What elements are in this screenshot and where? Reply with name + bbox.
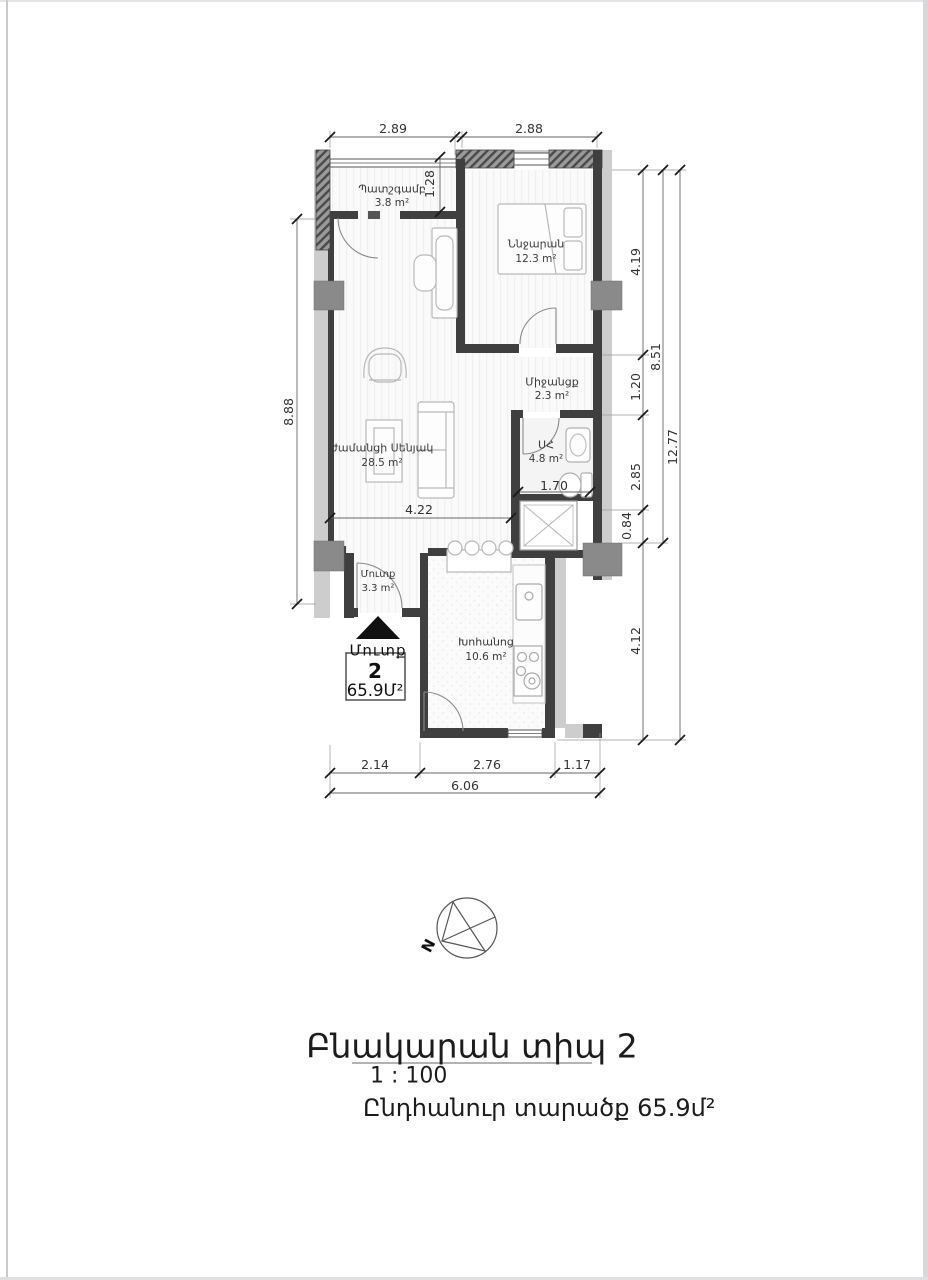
dim-right-1: 4.19 bbox=[630, 248, 643, 276]
dim-top-2: 2.88 bbox=[515, 123, 543, 136]
room-area-living: 28.5 m² bbox=[361, 458, 402, 469]
entrance-label: Մուտք bbox=[349, 644, 406, 659]
room-area-hallway: 2.3 m² bbox=[535, 391, 569, 402]
room-label-hallway: Միջանցք bbox=[525, 377, 579, 388]
shaft bbox=[520, 501, 577, 550]
room-label-kitchen: Խոհանոց bbox=[458, 637, 514, 648]
dim-right-3: 2.85 bbox=[630, 463, 643, 491]
sink bbox=[516, 584, 542, 620]
compass-icon bbox=[437, 898, 497, 958]
room-label-bedroom: Ննջարան bbox=[508, 239, 565, 250]
unit-number: 2 bbox=[368, 661, 382, 681]
dim-living-width: 4.22 bbox=[405, 504, 433, 517]
dim-bottom-total: 6.06 bbox=[451, 780, 479, 793]
desk-chair bbox=[414, 255, 436, 291]
drawing-scale: 1 : 100 bbox=[370, 1064, 447, 1089]
dim-right-2: 1.20 bbox=[630, 373, 643, 401]
dim-top-1: 2.89 bbox=[379, 123, 407, 136]
room-label-balcony: Պատշգամբ bbox=[358, 184, 426, 195]
dim-bottom-1: 2.14 bbox=[361, 759, 389, 772]
room-area-bathroom: 4.8 m² bbox=[529, 454, 563, 465]
total-area-text: Ընդհանուր տարածք 65.9մ² bbox=[363, 1094, 715, 1122]
dim-bottom-2: 2.76 bbox=[473, 759, 501, 772]
room-area-balcony: 3.8 m² bbox=[375, 198, 409, 209]
entrance-arrow-icon bbox=[356, 616, 400, 639]
floor-plan-page: 2.89 2.88 1.28 8.88 4.19 1.20 2.85 0.84 … bbox=[0, 0, 928, 1280]
dim-right-7: 4.12 bbox=[630, 627, 643, 655]
dim-bottom-3: 1.17 bbox=[563, 759, 591, 772]
room-label-entry: Մուտք bbox=[361, 570, 396, 580]
unit-area: 65.9Մ² bbox=[347, 683, 403, 700]
room-label-bathroom: ՍՀ bbox=[538, 440, 554, 451]
room-label-living: ժամանցի Սենյակ bbox=[331, 443, 434, 454]
dim-bath-width: 1.70 bbox=[540, 480, 568, 493]
dim-right-5: 8.51 bbox=[650, 343, 663, 371]
room-area-bedroom: 12.3 m² bbox=[515, 254, 556, 265]
room-area-entry: 3.3 m² bbox=[362, 584, 395, 594]
dim-right-4: 0.84 bbox=[621, 512, 634, 540]
room-area-kitchen: 10.6 m² bbox=[465, 652, 506, 663]
drawing-title: Բնակարան տիպ 2 bbox=[306, 1030, 637, 1063]
dim-left: 8.88 bbox=[283, 398, 296, 426]
dim-right-6: 12.77 bbox=[667, 429, 680, 465]
